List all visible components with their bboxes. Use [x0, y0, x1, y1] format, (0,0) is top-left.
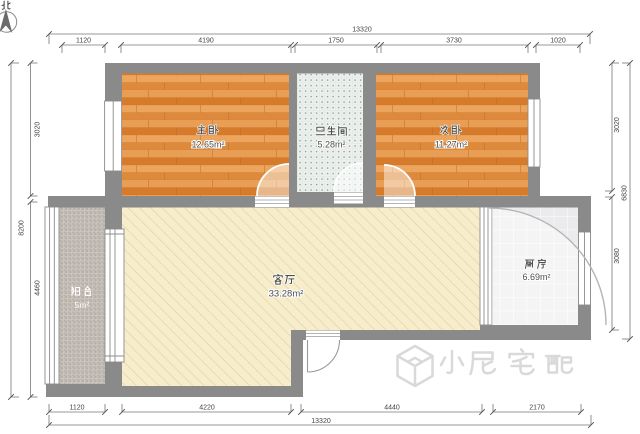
svg-text:12.65m²: 12.65m² [191, 140, 224, 150]
svg-text:1750: 1750 [328, 38, 344, 45]
svg-text:6.69m²: 6.69m² [522, 272, 550, 282]
svg-text:13320: 13320 [352, 27, 372, 34]
svg-text:1120: 1120 [69, 405, 84, 412]
svg-text:3020: 3020 [614, 117, 621, 133]
svg-text:3730: 3730 [446, 38, 462, 45]
svg-text:8200: 8200 [19, 220, 26, 236]
svg-text:4460: 4460 [35, 280, 42, 296]
svg-text:11.27m²: 11.27m² [435, 140, 467, 150]
svg-text:4220: 4220 [199, 405, 215, 412]
svg-text:4440: 4440 [384, 405, 400, 412]
svg-text:33.28m²: 33.28m² [269, 289, 304, 300]
svg-text:3080: 3080 [614, 248, 621, 264]
svg-text:6830: 6830 [622, 185, 629, 201]
svg-text:5.28m²: 5.28m² [317, 140, 345, 150]
svg-text:5m²: 5m² [75, 300, 90, 310]
svg-text:4190: 4190 [198, 38, 214, 45]
svg-text:3020: 3020 [35, 122, 42, 138]
svg-text:13320: 13320 [311, 418, 331, 425]
svg-text:2170: 2170 [529, 405, 545, 412]
svg-text:1120: 1120 [76, 38, 91, 45]
svg-text:1020: 1020 [550, 38, 566, 45]
